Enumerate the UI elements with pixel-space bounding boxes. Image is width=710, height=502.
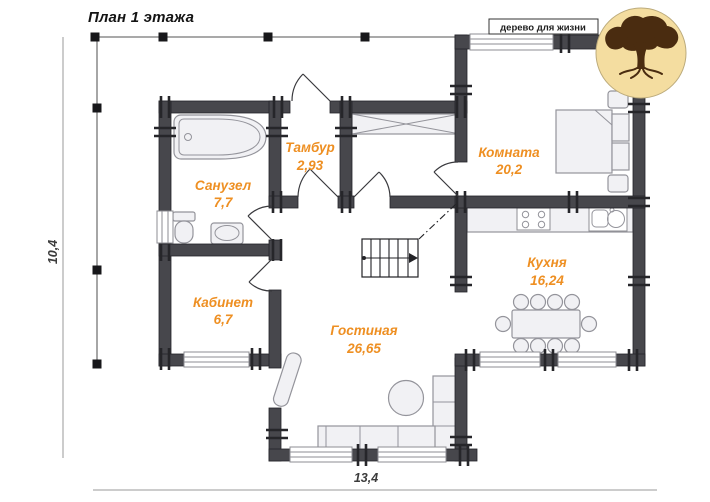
wardrobe <box>352 114 460 134</box>
tree-logo-icon <box>596 8 686 98</box>
kitchen-window-left <box>480 352 540 367</box>
corner-sofa <box>318 376 457 452</box>
terrace-post <box>361 33 370 42</box>
study-window <box>184 352 249 367</box>
room-label-komnata: Комната <box>478 145 540 160</box>
bedroom-door <box>434 162 458 196</box>
staircase <box>362 204 456 277</box>
study-door <box>249 259 272 291</box>
bathroom-sink <box>211 223 243 244</box>
room-label-kuhnya: Кухня <box>527 255 566 270</box>
dimension-width: 13,4 <box>354 471 378 485</box>
logo-tagline: дерево для жизни <box>500 23 586 34</box>
coffee-table <box>389 381 424 416</box>
dining-table-set <box>496 295 597 354</box>
room-area-kabinet: 6,7 <box>214 312 234 327</box>
room-area-tambur: 2,93 <box>296 158 324 173</box>
room-area-komnata: 20,2 <box>495 162 523 177</box>
living-window-right <box>378 447 446 462</box>
terrace-post <box>93 360 102 369</box>
terrace-post <box>91 33 100 42</box>
room-label-gostinaya: Гостиная <box>330 323 397 338</box>
bathroom-door <box>248 206 272 240</box>
kitchen-window-right <box>558 352 616 367</box>
room-label-tambur: Тамбур <box>285 140 335 155</box>
terrace-post <box>93 104 102 113</box>
terrace-post <box>93 266 102 275</box>
bathtub <box>174 115 266 159</box>
bathroom-window <box>157 211 173 243</box>
bedroom-window <box>470 34 553 50</box>
terrace-post <box>159 33 168 42</box>
entrance-door <box>292 74 330 101</box>
hall-door <box>354 172 390 197</box>
company-logo: дерево для жизни <box>489 8 686 98</box>
kitchen-counter <box>467 206 633 232</box>
living-window-left <box>290 447 352 462</box>
room-area-sanuzel: 7,7 <box>214 195 234 210</box>
bed <box>556 91 629 192</box>
room-label-sanuzel: Санузел <box>195 178 252 193</box>
room-label-kabinet: Кабинет <box>193 295 253 310</box>
floor-plan-page: План 1 этажа <box>0 0 710 502</box>
floor-plan-drawing: Санузел 7,7 Тамбур 2,93 Комната 20,2 Каб… <box>0 0 710 502</box>
terrace-post <box>264 33 273 42</box>
stove <box>517 208 550 230</box>
vestibule-door <box>298 169 338 197</box>
kitchen-sink <box>589 207 627 231</box>
room-area-kuhnya: 16,24 <box>530 273 564 288</box>
room-area-gostinaya: 26,65 <box>346 341 381 356</box>
toilet <box>173 212 195 243</box>
dimension-height: 10,4 <box>46 240 60 264</box>
